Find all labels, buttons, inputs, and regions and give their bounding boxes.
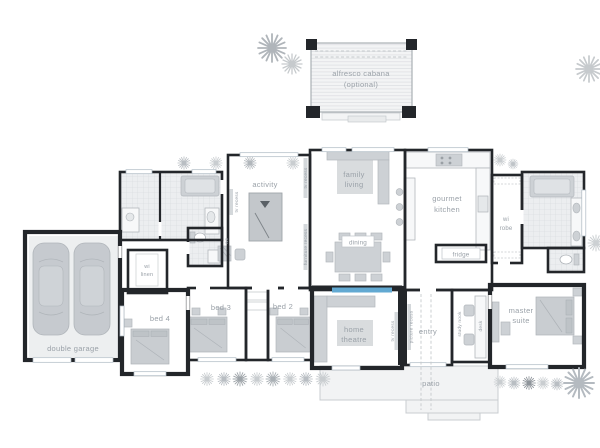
- cooktop-icon: [436, 154, 462, 166]
- activity-label: activity: [252, 180, 277, 189]
- pool-table-icon: [249, 193, 282, 241]
- master-label-line2: suite: [512, 316, 529, 325]
- wc-label: wc: [225, 237, 230, 244]
- picture-recess-label: picture recess: [409, 310, 415, 343]
- shrub-icon: [251, 373, 264, 386]
- bedside-table: [573, 288, 582, 296]
- dining-chair: [371, 274, 382, 281]
- shrub-icon: [508, 159, 518, 169]
- activity-tv-recess-strip: [230, 189, 234, 215]
- dining-chair: [339, 274, 350, 281]
- dining-label: dining: [349, 240, 367, 247]
- garage-label: double garage: [47, 344, 99, 353]
- wi-robe-label-line1: wi: [502, 217, 509, 223]
- kitchen-sink-icon: [478, 196, 488, 212]
- shrub-icon: [300, 373, 313, 386]
- toilet-icon: [560, 255, 572, 264]
- fridge-label: fridge: [453, 252, 470, 259]
- wi-linen-label-line2: linen: [141, 272, 154, 278]
- pillow: [566, 300, 572, 315]
- theatre-sofa-left: [314, 296, 327, 362]
- wi-linen-label-line1: wi: [143, 264, 150, 270]
- kitchen-label-line2: kitchen: [434, 205, 460, 214]
- patio-label: patio: [422, 379, 440, 388]
- cabana-bench: [348, 116, 386, 122]
- dining-chair: [326, 252, 333, 262]
- garage-door: [75, 358, 113, 363]
- shrub-icon: [551, 378, 563, 390]
- tree-icon: [282, 54, 302, 74]
- family-sofa-back: [327, 151, 389, 160]
- shrub-icon: [201, 373, 214, 386]
- ensuite-tub-inner: [534, 179, 570, 194]
- stool-icon: [396, 189, 403, 196]
- bed3-label: bed 3: [211, 303, 231, 312]
- floor-plan-svg: alfresco cabana (optional): [0, 0, 600, 448]
- theatre-sofa-top: [327, 296, 375, 307]
- alfresco-label-line2: (optional): [344, 80, 378, 89]
- cabana-post: [306, 106, 320, 118]
- desk-label: desk: [478, 320, 484, 331]
- kitchen-label-line1: gourmet: [432, 194, 462, 203]
- shrub-icon: [287, 157, 299, 169]
- patio-step-1: [406, 400, 498, 413]
- theatre-tv-recess-label: tv recess: [390, 320, 396, 341]
- bedside-table: [300, 308, 308, 315]
- basin-icon: [207, 212, 215, 223]
- robe-cupboard: [247, 302, 267, 310]
- shrub-icon: [266, 372, 280, 386]
- car-icon: [33, 243, 69, 335]
- family-sofa-chaise: [378, 160, 389, 204]
- dining-chair: [355, 274, 366, 281]
- family-label-line2: living: [345, 180, 364, 189]
- shrub-icon: [284, 373, 297, 386]
- cabana-post: [306, 39, 317, 50]
- entry-label: entry: [419, 327, 437, 336]
- pillow: [566, 318, 572, 333]
- master-chair: [501, 322, 510, 335]
- wi-robe-label-line2: robe: [500, 226, 513, 232]
- robe-cupboard: [247, 292, 267, 300]
- family-label-line1: family: [343, 170, 364, 179]
- shrub-icon: [244, 157, 256, 169]
- wi-linen-box: [136, 254, 158, 286]
- desk-chair: [464, 334, 474, 345]
- bed2-label: bed 2: [273, 302, 293, 311]
- bed3-icon: [189, 317, 227, 352]
- side-table-icon: [235, 249, 245, 260]
- theatre-screen: [332, 288, 392, 293]
- shrub-icon: [218, 373, 231, 386]
- bedside-table: [573, 336, 582, 344]
- shrub-icon: [494, 376, 506, 388]
- garage-door: [33, 358, 71, 363]
- shrub-icon: [508, 377, 520, 389]
- toilet-tank: [574, 254, 579, 265]
- stool-icon: [396, 204, 403, 211]
- theatre-label-line1: home: [344, 325, 364, 334]
- stool-icon: [396, 219, 403, 226]
- cabana-post: [402, 106, 416, 118]
- master-dresser: [492, 302, 499, 342]
- tree-icon: [564, 368, 594, 398]
- dining-chair: [383, 252, 390, 262]
- bed4-label: bed 4: [150, 314, 170, 323]
- shrub-icon: [537, 377, 549, 389]
- bed4-icon: [131, 329, 169, 364]
- shrub-icon: [233, 372, 247, 386]
- patio-step-2: [428, 413, 480, 420]
- tree-icon: [576, 56, 600, 82]
- shrub-icon: [494, 154, 506, 166]
- shrub-icon: [178, 157, 190, 169]
- bedside-table: [192, 308, 200, 315]
- master-label-line1: master: [509, 306, 534, 315]
- robes-walls: [246, 288, 268, 360]
- robe-shelf: [494, 252, 520, 258]
- robe-shelf: [494, 178, 520, 184]
- floor-plan-canvas: alfresco cabana (optional): [0, 0, 600, 448]
- study-nook-label: study nook: [457, 311, 463, 337]
- patio-slab: [320, 366, 498, 400]
- activity-tv-recess-label: tv recess: [234, 191, 240, 212]
- tree-icon: [258, 34, 286, 62]
- shrub-icon: [523, 377, 536, 390]
- shrub-icon: [316, 372, 330, 386]
- car-icon: [74, 243, 110, 335]
- theatre-label-line2: theatre: [341, 335, 366, 344]
- desk-chair: [464, 305, 474, 316]
- cabana-post: [406, 39, 417, 50]
- tree-icon: [588, 235, 600, 251]
- laundry-sink-icon: [126, 213, 134, 221]
- tv-recess-label: tv recess: [303, 167, 309, 188]
- basin-icon: [573, 203, 580, 213]
- alfresco-label-line1: alfresco cabana: [332, 69, 390, 78]
- furniture-recess-label: furniture recess: [303, 228, 309, 265]
- bedside-table: [124, 319, 132, 327]
- theatre-entry-wall: [398, 290, 407, 365]
- basin-icon: [573, 231, 580, 241]
- bed2-icon: [276, 317, 310, 352]
- bathtub-inner: [185, 179, 215, 193]
- shrub-icon: [210, 157, 222, 169]
